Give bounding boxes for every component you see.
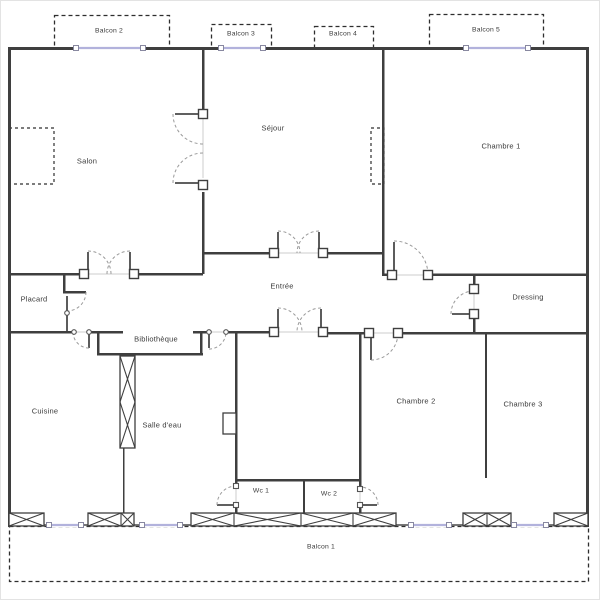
door-jamb-square (388, 271, 397, 280)
door-jamb-circle (207, 330, 212, 335)
wall (9, 273, 84, 276)
door-jamb-square (199, 181, 208, 190)
door-jamb-square (319, 249, 328, 258)
window-end-square (74, 46, 79, 51)
window-end-square (464, 46, 469, 51)
room-label-salon: Salon (77, 157, 97, 166)
window-end-square (140, 523, 145, 528)
door-swing-arc (209, 332, 226, 349)
wall (203, 252, 274, 255)
door-jamb-square (80, 270, 89, 279)
wall (485, 333, 487, 478)
wall (202, 192, 205, 274)
door-jamb-circle (87, 330, 92, 335)
wall (359, 333, 362, 489)
room-label-chambre-2: Chambre 2 (397, 397, 436, 406)
door-jamb-circle (72, 330, 77, 335)
wall (328, 332, 369, 335)
room-label-sejour: Séjour (262, 124, 285, 133)
fixture-box (223, 413, 236, 434)
door-jamb-circle (224, 330, 229, 335)
door-swing-arc (278, 231, 300, 253)
door-jamb-square (424, 271, 433, 280)
wall (428, 274, 588, 277)
door-jamb-square (270, 249, 279, 258)
wall (235, 479, 361, 482)
door-jamb-square (470, 285, 479, 294)
door-swing-arc (173, 153, 203, 183)
door-jamb-square (130, 270, 139, 279)
dashed-feature-box (9, 128, 54, 184)
door-jamb-square (394, 329, 403, 338)
window-end-square (178, 523, 183, 528)
room-label-entree: Entrée (270, 282, 293, 291)
door-jamb-circle (65, 311, 70, 316)
window-end-square (526, 46, 531, 51)
hatched-column (120, 356, 135, 448)
door-swing-arc (297, 308, 321, 332)
wall (63, 291, 86, 294)
wall (235, 332, 238, 486)
room-label-wc-2: Wc 2 (321, 491, 337, 498)
door-jamb-square-small (358, 503, 363, 508)
room-label-salle-deau: Salle d'eau (142, 421, 181, 430)
door-jamb-square-small (234, 503, 239, 508)
door-jamb-square (365, 329, 374, 338)
room-label-dressing: Dressing (512, 293, 543, 302)
floor-plan-drawing (1, 1, 600, 600)
room-label-bibliotheque: Bibliothèque (134, 335, 178, 344)
window-end-square (261, 46, 266, 51)
window-end-square (47, 523, 52, 528)
room-label-balcon-2: Balcon 2 (95, 28, 123, 35)
room-label-balcon-3: Balcon 3 (227, 31, 255, 38)
room-label-balcon-4: Balcon 4 (329, 31, 357, 38)
wall (200, 332, 203, 354)
window-end-square (544, 523, 549, 528)
window-end-square (219, 46, 224, 51)
door-swing-arc (107, 251, 130, 274)
wall (9, 331, 74, 334)
door-jamb-square-small (234, 484, 239, 489)
window-end-square (79, 523, 84, 528)
room-label-balcon-5: Balcon 5 (472, 27, 500, 34)
door-jamb-square-small (358, 487, 363, 492)
wall (97, 332, 100, 355)
window-end-square (447, 523, 452, 528)
wall (8, 47, 11, 527)
wall (323, 252, 383, 255)
door-jamb-square (319, 328, 328, 337)
door-swing-arc (67, 292, 86, 311)
room-label-balcon-1: Balcon 1 (307, 544, 335, 551)
wall (382, 48, 385, 276)
room-label-chambre-1: Chambre 1 (482, 142, 521, 151)
window-end-square (409, 523, 414, 528)
wall (97, 353, 203, 356)
wall (89, 331, 123, 334)
floor-plan-page: Balcon 2Balcon 3Balcon 4Balcon 5SalonSéj… (0, 0, 600, 600)
door-jamb-square (270, 328, 279, 337)
door-swing-arc (297, 231, 319, 253)
balcony-outline-balcon-1 (10, 527, 589, 582)
wall (134, 273, 203, 276)
wall (226, 331, 274, 334)
wall (202, 48, 205, 109)
room-label-placard: Placard (21, 295, 48, 304)
window-end-square (512, 523, 517, 528)
wall (586, 47, 589, 527)
room-label-wc-1: Wc 1 (253, 488, 269, 495)
wall (398, 332, 588, 335)
door-swing-arc (278, 308, 302, 332)
window-end-square (141, 46, 146, 51)
room-label-chambre-3: Chambre 3 (504, 400, 543, 409)
door-jamb-square (199, 110, 208, 119)
door-swing-arc (88, 251, 111, 274)
door-jamb-square (470, 310, 479, 319)
room-label-cuisine: Cuisine (32, 407, 58, 416)
wall (63, 274, 66, 293)
